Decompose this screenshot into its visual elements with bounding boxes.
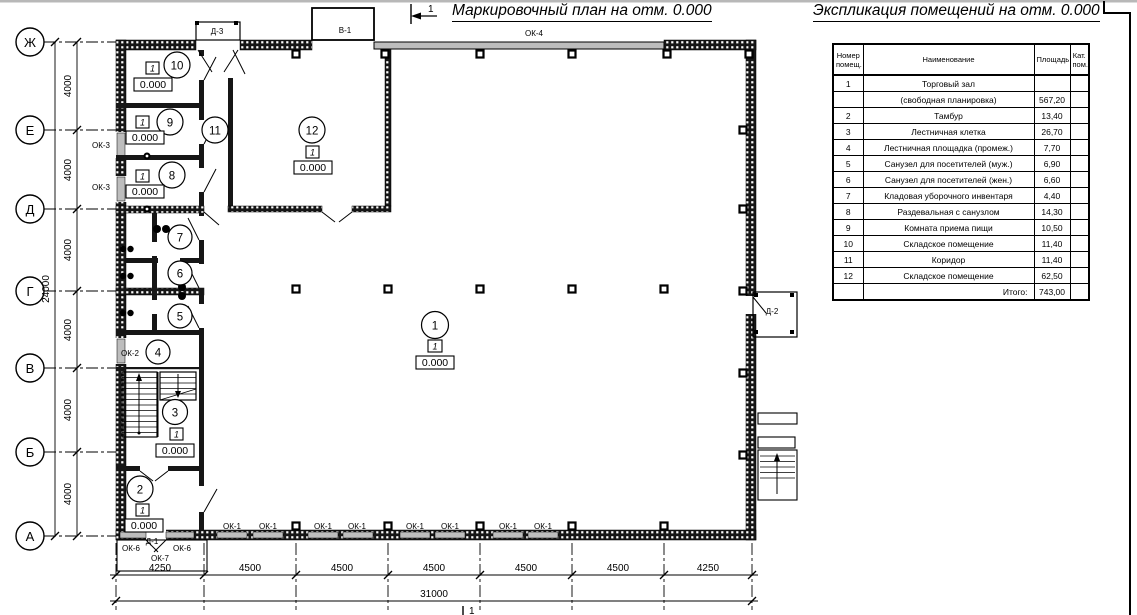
table-row: 4Лестничная площадка (промеж.)7,70 <box>833 140 1089 156</box>
table-header-row: Номер помещ. Наименование Площадь Кат. п… <box>833 44 1089 75</box>
col-header-number: Номер помещ. <box>833 44 863 75</box>
elevation-label: 0.000 <box>131 520 157 532</box>
cell-area: 13,40 <box>1034 108 1070 124</box>
cell-name: Тамбур <box>863 108 1034 124</box>
cell-area: 26,70 <box>1034 124 1070 140</box>
room-number: 10 <box>171 61 184 73</box>
axis-letter: Ж <box>24 35 36 50</box>
window-label: ОК-6 <box>173 544 192 553</box>
floor-type-marker: 1 <box>310 148 315 158</box>
dim-label: 4000 <box>63 318 74 341</box>
cell-name: Лестничная площадка (промеж.) <box>863 140 1034 156</box>
room-2-label: 2 1 0.000 <box>125 476 163 532</box>
cell-name: Санузел для посетителей (муж.) <box>863 156 1034 172</box>
dim-label: 4000 <box>63 74 74 97</box>
window-label: ОК-4 <box>525 29 544 38</box>
cell-num: 2 <box>833 108 863 124</box>
room-7-label: 7 <box>168 225 192 249</box>
table-row: 5Санузел для посетителей (муж.)6,90 <box>833 156 1089 172</box>
window-label: ОК-6 <box>122 544 141 553</box>
window-label: ОК-1 <box>406 522 425 531</box>
cell-num: 1 <box>833 75 863 92</box>
total-label: Итого: <box>863 284 1034 301</box>
cell-num <box>833 92 863 108</box>
room-number: 9 <box>167 118 173 130</box>
dim-label: 4000 <box>63 238 74 261</box>
door-swings <box>140 50 766 552</box>
room-number: 1 <box>432 321 438 333</box>
window-label: ОК-1 <box>441 522 460 531</box>
cell-cat <box>1070 188 1089 204</box>
elevation-label: 0.000 <box>422 357 448 369</box>
dim-label: 4250 <box>697 563 720 574</box>
door-label: Д-1 <box>146 537 159 546</box>
section-number: 1 <box>428 4 434 15</box>
room-number: 7 <box>177 233 183 245</box>
cell-name: Санузел для посетителей (жен.) <box>863 172 1034 188</box>
elevation-label: 0.000 <box>300 162 326 174</box>
table-row: 1Торговый зал <box>833 75 1089 92</box>
cell-area: 62,50 <box>1034 268 1070 284</box>
dim-label: 4500 <box>331 563 354 574</box>
room-number: 2 <box>137 485 143 497</box>
floor-type-marker: 1 <box>432 342 437 352</box>
col-header-area: Площадь <box>1034 44 1070 75</box>
total-value: 743,00 <box>1034 284 1070 301</box>
cell-name: Коридор <box>863 252 1034 268</box>
cell-cat <box>1070 268 1089 284</box>
cell-name: Раздевальная с санузлом <box>863 204 1034 220</box>
room-1-label: 1 1 0.000 <box>416 312 454 370</box>
window-label: ОК-1 <box>534 522 553 531</box>
room-number: 3 <box>172 408 178 420</box>
cell-area: 11,40 <box>1034 236 1070 252</box>
dim-label: 4250 <box>149 563 172 574</box>
cell-name: Комната приема пищи <box>863 220 1034 236</box>
cell-area: 11,40 <box>1034 252 1070 268</box>
cell-name: (свободная планировка) <box>863 92 1034 108</box>
axis-letter: Е <box>26 123 35 138</box>
window-label: ОК-1 <box>499 522 518 531</box>
cell-num: 10 <box>833 236 863 252</box>
door-label: Д-3 <box>211 27 224 36</box>
cell-area: 567,20 <box>1034 92 1070 108</box>
table-row: 6Санузел для посетителей (жен.)6,60 <box>833 172 1089 188</box>
cell-num: 9 <box>833 220 863 236</box>
room-number: 8 <box>169 171 175 183</box>
cell-cat <box>1070 140 1089 156</box>
table-row: 8Раздевальная с санузлом14,30 <box>833 204 1089 220</box>
room-8-label: 8 1 0.000 <box>126 162 185 198</box>
door-label: Д-2 <box>766 307 779 316</box>
dimensions-left: 4000 4000 4000 4000 4000 4000 24000 <box>41 38 81 540</box>
floor-type-marker: 1 <box>174 430 179 440</box>
room-number: 12 <box>306 126 319 138</box>
table-row: 11Коридор11,40 <box>833 252 1089 268</box>
table-row: 3Лестничная клетка26,70 <box>833 124 1089 140</box>
table-row: 12Складское помещение62,50 <box>833 268 1089 284</box>
dim-label: 4000 <box>63 158 74 181</box>
table-row: (свободная планировка)567,20 <box>833 92 1089 108</box>
elevation-label: 0.000 <box>162 445 188 457</box>
dim-total-label: 24000 <box>41 275 52 303</box>
cell-area: 6,60 <box>1034 172 1070 188</box>
cell-area: 14,30 <box>1034 204 1070 220</box>
cell-cat <box>1070 124 1089 140</box>
cell-num: 12 <box>833 268 863 284</box>
dim-label: 4500 <box>423 563 446 574</box>
cell-num: 11 <box>833 252 863 268</box>
window-label: ОК-1 <box>314 522 333 531</box>
cell-cat <box>1070 252 1089 268</box>
floor-type-marker: 1 <box>140 506 145 516</box>
window-label: ОК-3 <box>92 141 111 150</box>
cell-num: 7 <box>833 188 863 204</box>
cell-name: Складское помещение <box>863 236 1034 252</box>
floor-type-marker: 1 <box>140 172 145 182</box>
dim-label: 4500 <box>239 563 262 574</box>
cell-num: 8 <box>833 204 863 220</box>
dim-label: 4000 <box>63 482 74 505</box>
room-number: 6 <box>177 269 183 281</box>
section-mark-top: 1 <box>411 4 437 24</box>
room-9-label: 9 1 0.000 <box>126 109 183 144</box>
table-row: 2Тамбур13,40 <box>833 108 1089 124</box>
cell-area: 4,40 <box>1034 188 1070 204</box>
dim-total-label: 31000 <box>420 589 448 600</box>
room-3-label: 3 1 0.000 <box>156 400 194 458</box>
cell-area: 7,70 <box>1034 140 1070 156</box>
explication-table: Номер помещ. Наименование Площадь Кат. п… <box>832 43 1090 301</box>
window-label: ОК-3 <box>92 183 111 192</box>
window-label: ОК-7 <box>151 554 170 563</box>
cell-name: Лестничная клетка <box>863 124 1034 140</box>
dim-label: 4000 <box>63 398 74 421</box>
columns <box>293 51 753 530</box>
section-number: 1 <box>469 606 475 615</box>
axis-letter: Д <box>26 202 35 217</box>
cell-cat <box>1070 172 1089 188</box>
table-row: 9Комната приема пищи10,50 <box>833 220 1089 236</box>
room-11-label: 11 <box>202 117 228 143</box>
window-label: ОК-1 <box>259 522 278 531</box>
cell-cat <box>1070 92 1089 108</box>
dim-label: 4500 <box>607 563 630 574</box>
room-12-label: 12 1 0.000 <box>294 117 332 174</box>
window-label: ОК-1 <box>348 522 367 531</box>
cell-area: 10,50 <box>1034 220 1070 236</box>
drawing-sheet: Маркировочный план на отм. 0.000 Эксплик… <box>0 0 1137 615</box>
room-6-label: 6 <box>168 261 192 285</box>
vestibule-label: В-1 <box>339 26 352 35</box>
table-total-row: Итого:743,00 <box>833 284 1089 301</box>
cell-cat <box>1070 108 1089 124</box>
cell-cat <box>1070 156 1089 172</box>
axis-letter: Г <box>26 284 33 299</box>
cell-cat <box>1070 236 1089 252</box>
room-5-label: 5 <box>168 304 192 328</box>
cell-area <box>1034 75 1070 92</box>
room-number: 5 <box>177 312 183 324</box>
table-row: 7Кладовая уборочного инвентаря4,40 <box>833 188 1089 204</box>
axis-grid-left: Ж Е Д Г В Б А <box>16 28 120 550</box>
room-4-label: 4 <box>146 340 170 364</box>
cell-area: 6,90 <box>1034 156 1070 172</box>
col-header-cat: Кат. пом. <box>1070 44 1089 75</box>
window-label: ОК-2 <box>121 349 140 358</box>
floor-type-marker: 1 <box>150 64 155 74</box>
room-10-label: 10 1 0.000 <box>134 52 190 91</box>
axis-letter: В <box>26 361 35 376</box>
dim-label: 4500 <box>515 563 538 574</box>
cell-name: Кладовая уборочного инвентаря <box>863 188 1034 204</box>
col-header-name: Наименование <box>863 44 1034 75</box>
cell-name: Торговый зал <box>863 75 1034 92</box>
cell-cat <box>1070 75 1089 92</box>
cell-name: Складское помещение <box>863 268 1034 284</box>
cell-cat <box>1070 204 1089 220</box>
elevation-label: 0.000 <box>140 79 166 91</box>
cell-num: 5 <box>833 156 863 172</box>
axis-letter: А <box>26 529 35 544</box>
section-mark-bottom: 1 <box>463 606 475 615</box>
cell-cat <box>1070 284 1089 301</box>
cell-num: 3 <box>833 124 863 140</box>
elevation-label: 0.000 <box>132 132 158 144</box>
cell-cat <box>1070 220 1089 236</box>
elevation-label: 0.000 <box>132 186 158 198</box>
table-row: 10Складское помещение11,40 <box>833 236 1089 252</box>
porches <box>117 8 797 571</box>
floor-type-marker: 1 <box>140 118 145 128</box>
window-label: ОК-1 <box>223 522 242 531</box>
cell-num: 4 <box>833 140 863 156</box>
cell-num: 6 <box>833 172 863 188</box>
room-number: 11 <box>209 126 221 138</box>
cell-num <box>833 284 863 301</box>
room-number: 4 <box>155 348 162 360</box>
axis-letter: Б <box>26 445 35 460</box>
